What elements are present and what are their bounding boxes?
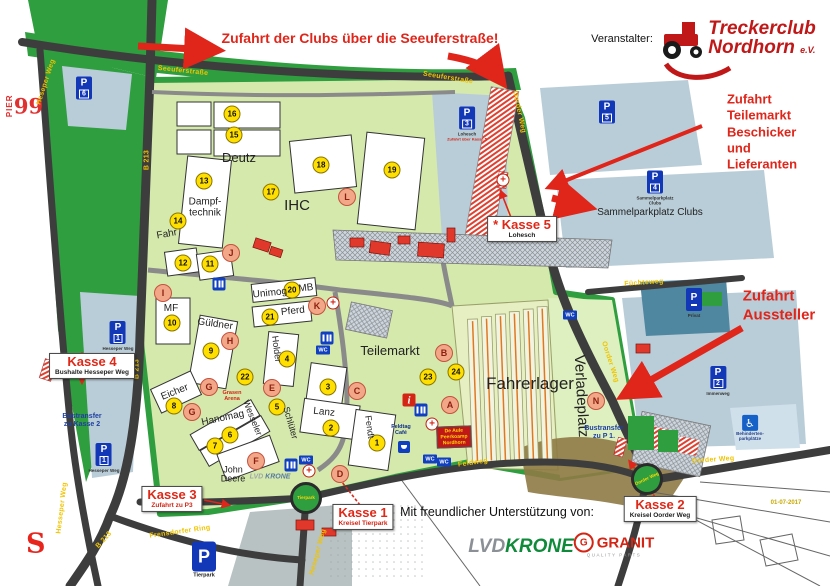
letter-marker: E (263, 379, 281, 397)
date-note: 01-07-2017 (771, 500, 802, 506)
parking-p-icon: P1 (110, 321, 126, 344)
parking-sign: P5 (599, 101, 615, 124)
wc-sign: WC (563, 311, 577, 320)
kasse-box: Kasse 3 Zufahrt zu P3 (141, 486, 202, 512)
kasse-name: * Kasse 5 (493, 218, 551, 232)
kasse-subtitle: Kreisel Tierpark (338, 520, 387, 528)
number-marker: 22 (237, 369, 254, 386)
parking-label: Hesseper Weg (103, 346, 134, 351)
toilet-icon (285, 459, 298, 472)
number-marker: 6 (222, 427, 239, 444)
kasse-box: Kasse 2 Kreisel Oorder Weg (624, 496, 697, 522)
de-aule-peerkoamp-sign: De Aule Peerkoamp Nordhorn (436, 425, 472, 448)
number-marker: 21 (262, 309, 279, 326)
area-label: MF (164, 304, 178, 315)
area-label: Dampf- technik (189, 198, 222, 219)
letter-marker: J (222, 244, 240, 262)
sparkasse-logo: S (26, 529, 830, 560)
notice-teilemarkt: Zufahrt Teilemarkt Beschicker und Liefer… (727, 91, 797, 172)
parking-sign: P6 (76, 77, 92, 100)
kasse-box: Kasse 1 Kreisel Tierpark (332, 504, 393, 530)
parking-label: Immenweg (706, 391, 729, 396)
info-icon: i (403, 394, 416, 407)
parking-p-icon: P4 (647, 171, 663, 194)
organizer-name: Treckerclub Nordhorn e.V. (708, 19, 815, 57)
letter-marker: B (435, 344, 453, 362)
number-marker: 12 (175, 255, 192, 272)
handicap-label: Behinderten- parkplätze (736, 431, 764, 441)
arrow-clubs-left (138, 46, 212, 50)
street-label: B 213 (144, 150, 151, 170)
letter-marker: I (154, 284, 172, 302)
kasse-subtitle: Zufahrt zu P3 (147, 502, 196, 510)
kasse-name: Kasse 2 (630, 498, 691, 512)
handicap-parking: ♿ Behinderten- parkplätze (736, 415, 764, 441)
area-label: John Deere (221, 466, 246, 485)
organizer-line1: Treckerclub (708, 19, 815, 38)
kasse-name: Kasse 4 (55, 355, 129, 369)
letter-marker: G (183, 403, 201, 421)
letter-marker: A (441, 396, 459, 414)
letter-marker: L (338, 188, 356, 206)
notice-aussteller: Zufahrt Aussteller (743, 287, 816, 325)
number-marker: 7 (207, 438, 224, 455)
area-label: IHC (284, 198, 310, 214)
toilet-icon (321, 332, 334, 345)
toilet-icon (213, 278, 226, 291)
area-label: Holder (270, 335, 283, 362)
wheelchair-icon: ♿ (742, 415, 758, 431)
area-label: Deutz (222, 151, 256, 165)
first-aid-icon: + (497, 174, 510, 187)
notice-clubs: Zufahrt der Clubs über die Seeuferstraße… (222, 30, 499, 46)
parking-note: Zufahrt über Kasse 5 (447, 137, 487, 142)
number-marker: 23 (420, 369, 437, 386)
parking-sign: P3 Lohesch Zufahrt über Kasse 5 (447, 107, 487, 142)
event-grounds-map: PIER 99 Zufahrt der Clubs über die Seeuf… (0, 0, 830, 586)
sponsors-heading: Mit freundlicher Unterstützung von: (400, 505, 594, 519)
organizer-suffix: e.V. (800, 45, 815, 55)
letter-marker: F (247, 452, 265, 470)
area-label: Fendt (363, 415, 376, 439)
area-label: Lanz (313, 407, 336, 420)
area-label: MB (298, 283, 314, 295)
cafe-icon (398, 441, 410, 453)
wc-sign: WC (299, 456, 313, 465)
lot-p5 (540, 80, 702, 175)
number-marker: 3 (320, 379, 337, 396)
number-marker: 19 (384, 162, 401, 179)
letter-marker: K (308, 297, 326, 315)
number-marker: 11 (202, 256, 219, 273)
kasse-box: * Kasse 5 Lohesch (487, 216, 557, 242)
pier99-text: PIER (5, 95, 14, 118)
parking-p-icon: P (686, 288, 702, 311)
number-marker: 10 (164, 315, 181, 332)
kasse-box: Kasse 4 Bushalte Hesseper Weg (49, 353, 135, 379)
toilet-icon (415, 404, 428, 417)
number-marker: 2 (323, 420, 340, 437)
bus-transfer-label: Bustransfer zu Kasse 2 (62, 413, 101, 429)
kasse-subtitle: Kreisel Oorder Weg (630, 512, 691, 520)
map-base (0, 0, 830, 586)
area-label: Fahrerlager (486, 375, 574, 393)
number-marker: 18 (313, 157, 330, 174)
number-marker: 9 (203, 343, 220, 360)
letter-marker: C (348, 382, 366, 400)
parking-label: Hesseper Weg (89, 468, 120, 473)
roundabout: Tierpark (290, 482, 322, 514)
number-marker: 24 (448, 364, 465, 381)
parking-label: Sammelparkplatz Clubs (632, 196, 678, 206)
number-marker: 16 (224, 106, 241, 123)
parking-p-icon: P1 (96, 443, 112, 466)
lot-p6 (62, 66, 132, 130)
kasse-subtitle: Bushalte Hesseper Weg (55, 369, 129, 377)
lvd-krone-small-logo: LVD KRONE (250, 474, 291, 481)
letter-marker: H (221, 332, 239, 350)
parking-p-icon: P6 (76, 77, 92, 100)
kasse-name: Kasse 3 (147, 488, 196, 502)
area-label: Sammelparkplatz Clubs (597, 208, 703, 219)
wc-sign: WC (423, 455, 437, 464)
tierpark-p-label: Tierpark (192, 573, 216, 579)
wc-sign: WC (437, 458, 451, 467)
lvd-krone-logo: LVDKRONE (468, 536, 574, 558)
area-label: Teilemarkt (360, 344, 419, 358)
parking-sign: P1 Hesseper Weg (103, 321, 134, 351)
parking-sign: P4 Sammelparkplatz Clubs (632, 171, 678, 206)
granit-g-icon: G (574, 533, 594, 553)
parking-sign: P1 Hesseper Weg (89, 443, 120, 473)
organizer-line2: Nordhorn e.V. (708, 38, 815, 57)
number-marker: 13 (196, 173, 213, 190)
wc-sign: WC (316, 346, 330, 355)
organizer-label: Veranstalter: (591, 33, 653, 45)
first-aid-icon: + (327, 297, 340, 310)
kasse-subtitle: Lohesch (493, 232, 551, 240)
letter-marker: G (200, 378, 218, 396)
parking-sign: P Privat (686, 288, 702, 318)
parking-p-icon: P3 (459, 107, 475, 130)
parking-p-icon: P2 (710, 366, 726, 389)
granit-logo: G GRANIT QUALITY PARTS (574, 533, 655, 558)
number-marker: 17 (263, 184, 280, 201)
parking-label: Privat (686, 313, 702, 318)
first-aid-icon: + (303, 465, 316, 478)
number-marker: 15 (226, 127, 243, 144)
granit-subtitle: QUALITY PARTS (574, 553, 655, 558)
cafe-label: Feldtag Café (391, 424, 411, 436)
bus-transfer-label: Bustransfer zu P 1. (584, 425, 623, 441)
parking-p-icon: P5 (599, 101, 615, 124)
kasse-name: Kasse 1 (338, 506, 387, 520)
parking-sign: P2 Immenweg (706, 366, 729, 396)
arena-label: Grasen Arena (223, 390, 242, 402)
letter-marker: D (331, 465, 349, 483)
